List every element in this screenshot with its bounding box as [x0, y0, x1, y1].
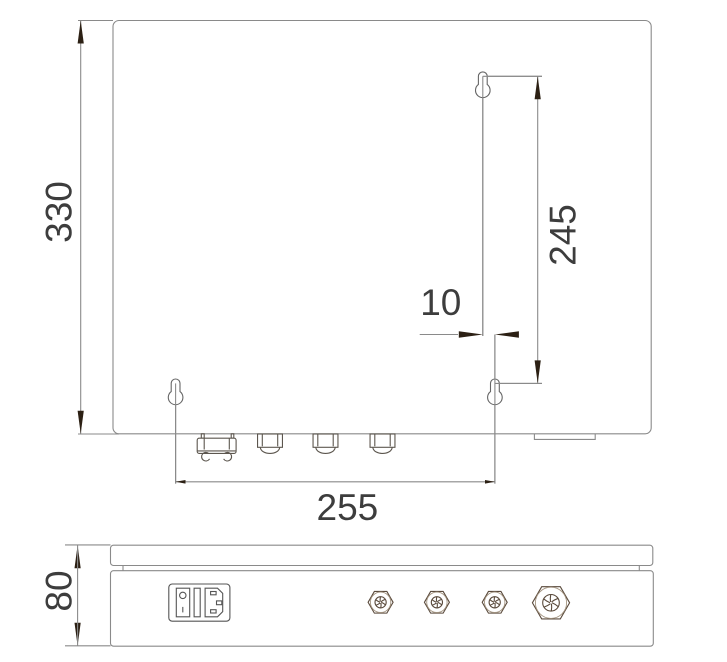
svg-text:10: 10	[420, 282, 461, 323]
svg-text:255: 255	[317, 487, 379, 528]
svg-text:330: 330	[38, 181, 79, 243]
svg-text:245: 245	[543, 204, 584, 266]
svg-text:80: 80	[38, 570, 79, 611]
